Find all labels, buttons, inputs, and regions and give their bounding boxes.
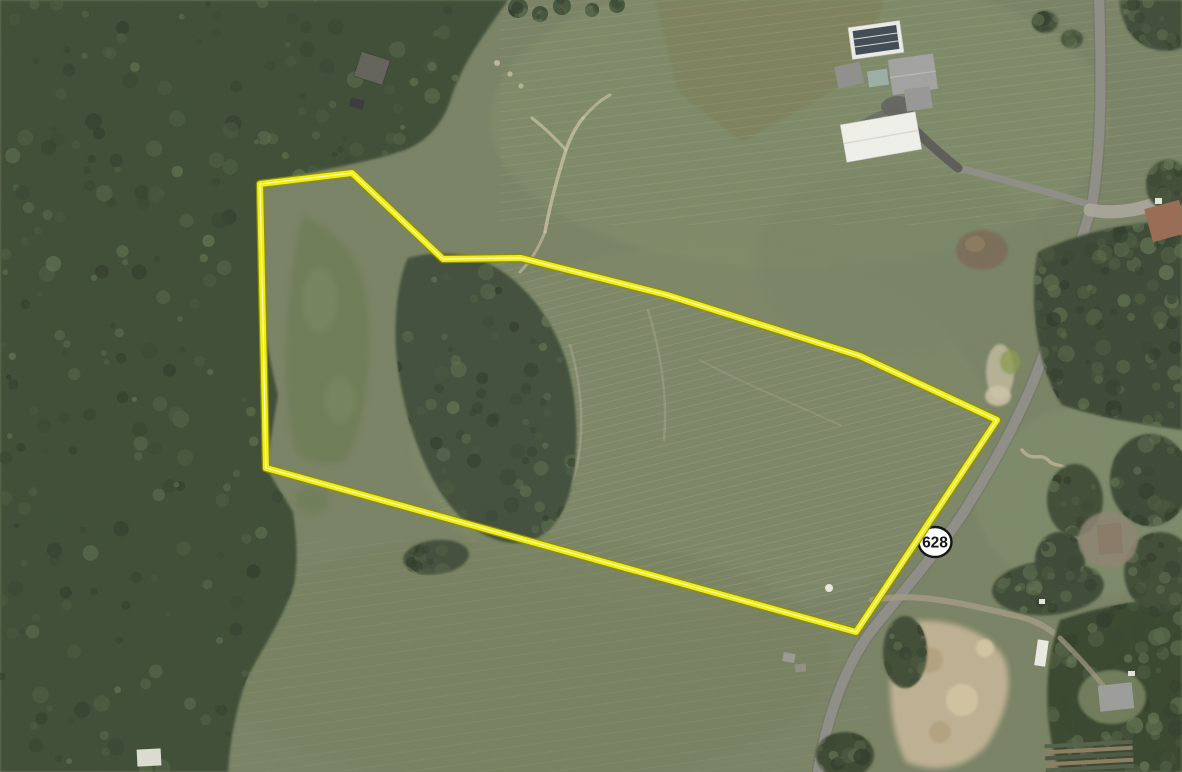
photo-grain-overlay	[0, 0, 1182, 772]
aerial-map-canvas[interactable]: 628	[0, 0, 1182, 772]
aerial-map-viewport: 628	[0, 0, 1182, 772]
route-628-label: 628	[922, 535, 948, 552]
